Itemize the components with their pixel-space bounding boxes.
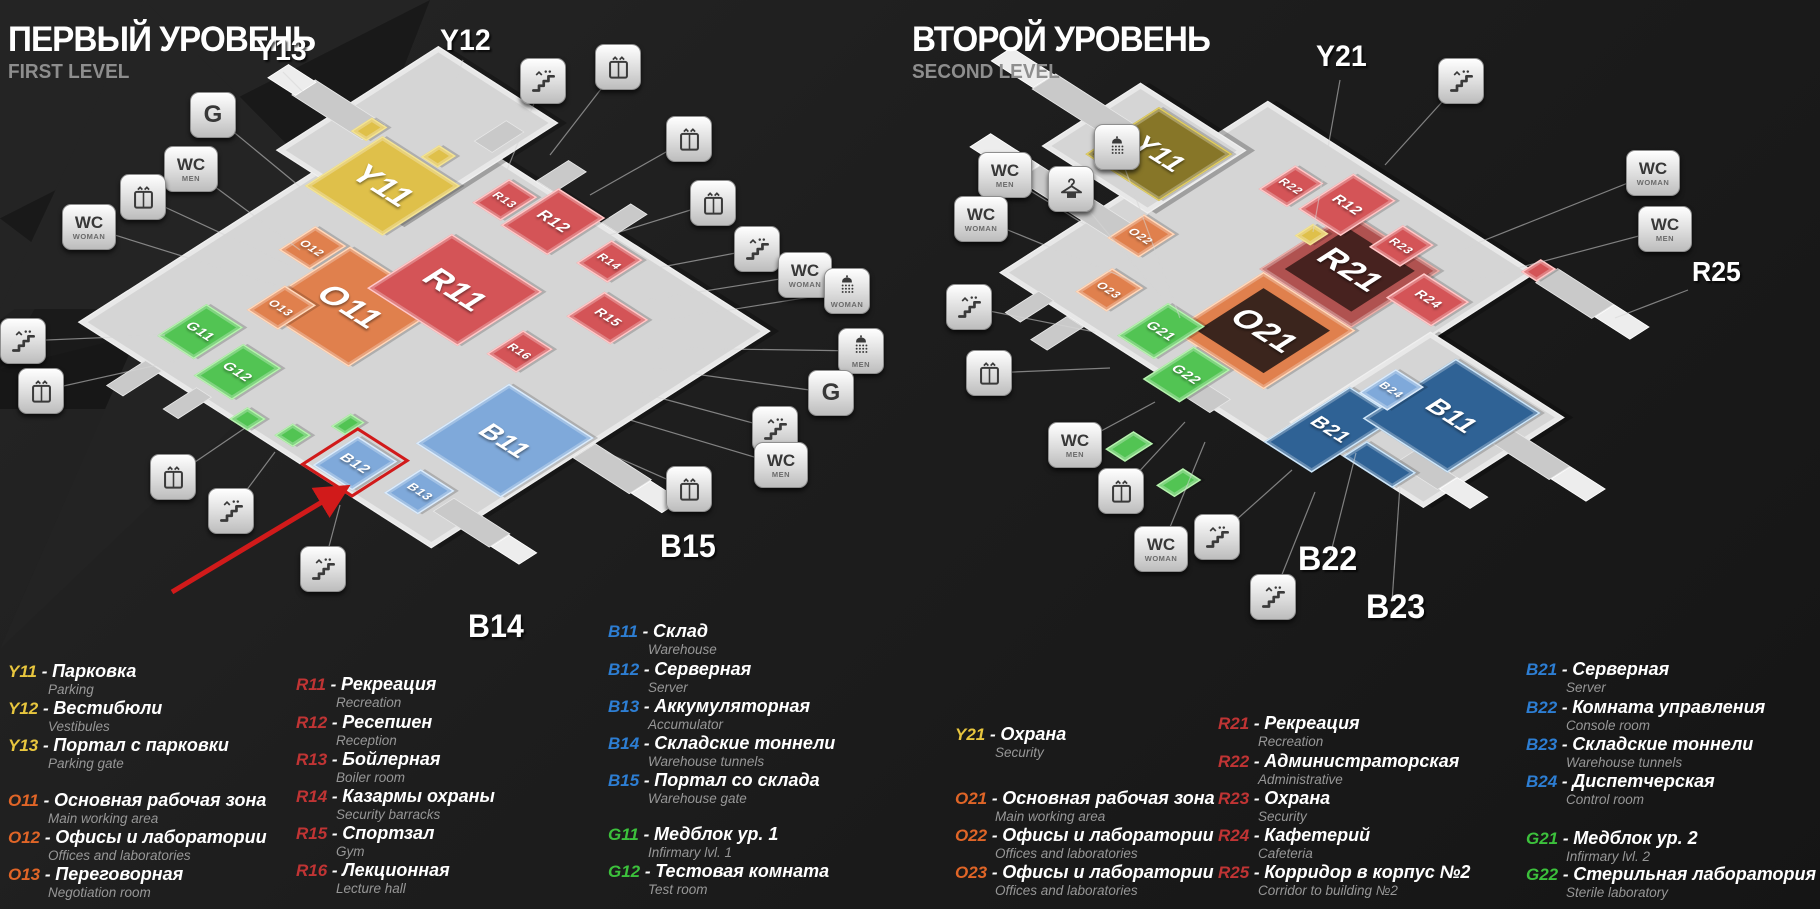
legend-entry-r13: R13 - БойлернаяBoiler room — [296, 749, 440, 786]
legend-dash: - — [985, 725, 1000, 744]
elevator-icon — [130, 184, 157, 211]
stairs-badge — [0, 318, 46, 364]
map-label-r25: R25 — [1692, 258, 1741, 286]
shower-icon — [848, 333, 874, 359]
elevator-badge — [18, 368, 64, 414]
legend-room-code: O21 — [955, 789, 987, 808]
wc-badge: WCMEN — [164, 146, 218, 192]
legend-entry-r14: R14 - Казармы охраныSecurity barracks — [296, 786, 495, 823]
elevator-badge — [150, 454, 196, 500]
map-label-y21: Y21 — [1316, 42, 1367, 72]
legend-room-code: R25 — [1218, 863, 1249, 882]
legend-name-en: Warehouse gate — [608, 791, 820, 807]
gate-badge-text: G — [204, 103, 223, 127]
map-pad — [1105, 431, 1153, 462]
wc-badge: WCWOMAN — [1134, 526, 1188, 572]
wc-badge-text: WC — [791, 262, 819, 279]
wc-badge-text: WC — [1651, 216, 1679, 233]
legend-room-code: B11 — [608, 622, 638, 641]
legend-room-code: G22 — [1526, 865, 1558, 884]
legend-dash: - — [40, 865, 55, 884]
room-label: R22 — [1275, 176, 1307, 196]
legend-entry-r23: R23 - ОхранаSecurity — [1218, 788, 1330, 825]
legend-dash: - — [1249, 752, 1264, 771]
legend-room-code: R23 — [1218, 789, 1249, 808]
facility-map-stage: ПЕРВЫЙ УРОВЕНЬ FIRST LEVEL ВТОРОЙ УРОВЕН… — [0, 0, 1820, 909]
wc-badge: WCMEN — [978, 152, 1032, 198]
legend-entry-o12: O12 - Офисы и лабораторииOffices and lab… — [8, 827, 267, 864]
legend-name-en: Offices and laboratories — [955, 846, 1214, 862]
room-label: B13 — [402, 481, 436, 503]
legend-name-en: Test room — [608, 882, 829, 898]
legend-entry-r15: R15 - СпортзалGym — [296, 823, 434, 860]
room-label: G22 — [1167, 362, 1206, 387]
legend-name-ru: Бойлерная — [342, 749, 440, 769]
legend-name-en: Security barracks — [296, 807, 495, 823]
wc-badge: WCWOMAN — [1626, 150, 1680, 196]
legend-dash: - — [39, 791, 54, 810]
legend-room-code: B22 — [1526, 698, 1557, 717]
level2-subtitle: SECOND LEVEL — [912, 61, 1210, 84]
level2-title-block: ВТОРОЙ УРОВЕНЬ SECOND LEVEL — [912, 22, 1226, 84]
legend-name-en: Parking — [8, 682, 136, 698]
legend-name-en: Warehouse tunnels — [1526, 755, 1753, 771]
legend-name-en: Cafeteria — [1218, 846, 1370, 862]
room-label: G12 — [218, 359, 257, 384]
legend-room-code: Y21 — [955, 725, 985, 744]
legend-room-code: O23 — [955, 863, 987, 882]
elevator-badge — [966, 350, 1012, 396]
legend-room-code: O12 — [8, 828, 40, 847]
legend-dash: - — [639, 660, 654, 679]
map-label-b14: B14 — [468, 610, 524, 642]
legend-dash: - — [327, 861, 342, 880]
elevator-badge — [120, 174, 166, 220]
legend-dash: - — [1558, 865, 1573, 884]
legend-entry-o11: O11 - Основная рабочая зонаMain working … — [8, 790, 266, 827]
room-label: R12 — [531, 207, 575, 235]
legend-dash: - — [639, 734, 654, 753]
legend-name-ru: Складские тоннели — [654, 733, 835, 753]
stairs-icon — [10, 328, 37, 355]
legend-name-en: Security — [1218, 809, 1330, 825]
legend-dash: - — [1557, 698, 1572, 717]
legend-room-code: G21 — [1526, 829, 1558, 848]
badge-sub-label: WOMAN — [73, 233, 106, 241]
legend-entry-r11: R11 - РекреацияRecreation — [296, 674, 436, 711]
legend-room-code: Y13 — [8, 736, 38, 755]
legend-name-ru: Медблок ур. 2 — [1573, 828, 1697, 848]
legend-dash: - — [1249, 714, 1264, 733]
legend-name-ru: Вестибюли — [53, 698, 162, 718]
room-label: R15 — [590, 307, 626, 330]
room-label: R13 — [489, 190, 521, 210]
elevator-badge — [595, 44, 641, 90]
room-label: R14 — [594, 251, 626, 271]
legend-name-ru: Стерильная лаборатория — [1573, 864, 1816, 884]
room-label: O22 — [1125, 226, 1157, 247]
legend-name-en: Corridor to building №2 — [1218, 883, 1470, 899]
legend-room-code: B21 — [1526, 660, 1557, 679]
legend-dash: - — [327, 787, 342, 806]
badge-sub-label: MEN — [1066, 451, 1084, 459]
legend-dash: - — [639, 825, 654, 844]
legend-name-ru: Ресепшен — [342, 712, 432, 732]
legend-name-en: Warehouse — [608, 642, 717, 658]
stairs-badge — [208, 488, 254, 534]
legend-entry-y12: Y12 - ВестибюлиVestibules — [8, 698, 162, 735]
legend-name-en: Console room — [1526, 718, 1765, 734]
room-label: B24 — [1376, 380, 1408, 400]
legend-name-ru: Портал с парковки — [53, 735, 229, 755]
badge-sub-label: WOMAN — [965, 225, 998, 233]
legend-room-code: O22 — [955, 826, 987, 845]
legend-dash: - — [40, 828, 55, 847]
legend-dash: - — [37, 662, 52, 681]
wc-badge-text: WC — [1061, 432, 1089, 449]
legend-name-en: Parking gate — [8, 756, 229, 772]
elevator-icon — [605, 54, 632, 81]
legend-entry-o23: O23 - Офисы и лабораторииOffices and lab… — [955, 862, 1214, 899]
map-label-b15: B15 — [660, 530, 716, 562]
stairs-icon — [310, 556, 337, 583]
gate-badge-text: G — [822, 381, 841, 405]
legend-entry-g11: G11 - Медблок ур. 1Infirmary lvl. 1 — [608, 824, 778, 861]
corridor-arm — [1005, 291, 1054, 323]
legend-name-ru: Офисы и лаборатории — [1002, 825, 1213, 845]
legend-dash: - — [326, 675, 341, 694]
legend-entry-g12: G12 - Тестовая комнатаTest room — [608, 861, 829, 898]
room-label: R24 — [1410, 288, 1446, 311]
legend-room-code: B12 — [608, 660, 639, 679]
legend-room-code: B24 — [1526, 772, 1557, 791]
stairs-icon — [530, 68, 557, 95]
legend-room-code: Y12 — [8, 699, 38, 718]
stairs-icon — [1260, 584, 1287, 611]
shower-badge: MEN — [838, 328, 884, 374]
room-label: O23 — [1093, 280, 1125, 301]
elevator-icon — [976, 360, 1003, 387]
legend-name-en: Accumulator — [608, 717, 810, 733]
hanger-icon — [1058, 176, 1085, 203]
legend-entry-b13: B13 - АккумуляторнаяAccumulator — [608, 696, 810, 733]
legend-name-en: Security — [955, 745, 1066, 761]
legend-room-code: B23 — [1526, 735, 1557, 754]
stairs-badge — [1250, 574, 1296, 620]
legend-name-ru: Офисы и лаборатории — [55, 827, 266, 847]
legend-dash: - — [987, 826, 1002, 845]
wc-badge-text: WC — [1147, 536, 1175, 553]
legend-dash: - — [987, 789, 1002, 808]
legend-entry-r24: R24 - КафетерийCafeteria — [1218, 825, 1370, 862]
legend-entry-r12: R12 - РесепшенReception — [296, 712, 432, 749]
legend-dash: - — [327, 824, 342, 843]
wc-badge-text: WC — [767, 452, 795, 469]
stairs-icon — [762, 416, 789, 443]
legend-name-en: Infirmary lvl. 2 — [1526, 849, 1698, 865]
legend-room-code: B15 — [608, 771, 639, 790]
legend-room-code: G12 — [608, 862, 640, 881]
legend-dash: - — [1249, 789, 1264, 808]
legend-name-ru: Тестовая комната — [655, 861, 829, 881]
wc-badge: WCMEN — [1048, 422, 1102, 468]
elevator-badge — [666, 116, 712, 162]
legend-entry-y21: Y21 - ОхранаSecurity — [955, 724, 1066, 761]
elevator-icon — [700, 190, 727, 217]
legend-dash: - — [639, 771, 654, 790]
room-label: O13 — [265, 297, 297, 318]
legend-name-en: Lecture hall — [296, 881, 450, 897]
legend-room-code: O13 — [8, 865, 40, 884]
legend-entry-y11: Y11 - ПарковкаParking — [8, 661, 136, 698]
corridor-arm — [1030, 316, 1084, 350]
legend-room-code: R21 — [1218, 714, 1249, 733]
legend-dash: - — [1557, 735, 1572, 754]
stairs-icon — [1204, 524, 1231, 551]
legend-name-ru: Склад — [653, 621, 708, 641]
shower-icon — [1104, 134, 1130, 160]
legend-entry-b14: B14 - Складские тоннелиWarehouse tunnels — [608, 733, 835, 770]
shower-badge — [1094, 124, 1140, 170]
wc-badge: WCMEN — [754, 442, 808, 488]
badge-sub-label: MEN — [772, 471, 790, 479]
elevator-badge — [666, 466, 712, 512]
legend-dash: - — [327, 713, 342, 732]
stairs-badge — [734, 226, 780, 272]
legend-name-ru: Серверная — [654, 659, 751, 679]
stairs-icon — [956, 294, 983, 321]
legend-entry-b15: B15 - Портал со складаWarehouse gate — [608, 770, 820, 807]
stairs-icon — [744, 236, 771, 263]
legend-name-en: Recreation — [296, 695, 436, 711]
legend-room-code: R22 — [1218, 752, 1249, 771]
legend-name-ru: Основная рабочая зона — [1002, 788, 1214, 808]
elevator-icon — [160, 464, 187, 491]
badge-sub-label: WOMAN — [1637, 179, 1670, 187]
legend-dash: - — [638, 622, 653, 641]
legend-name-ru: Переговорная — [55, 864, 183, 884]
legend-name-en: Infirmary lvl. 1 — [608, 845, 778, 861]
stairs-icon — [1448, 68, 1475, 95]
room-label: B11 — [471, 419, 540, 463]
legend-entry-b11: B11 - СкладWarehouse — [608, 621, 717, 658]
wc-badge-text: WC — [177, 156, 205, 173]
shower-icon — [834, 273, 860, 299]
g-badge: G — [808, 370, 854, 416]
legend-name-en: Server — [1526, 680, 1669, 696]
legend-entry-y13: Y13 - Портал с парковкиParking gate — [8, 735, 229, 772]
room-label: R12 — [1327, 192, 1367, 218]
legend-name-en: Server — [608, 680, 751, 696]
map-label-b23: B23 — [1366, 590, 1425, 624]
legend-name-en: Recreation — [1218, 734, 1360, 750]
legend-name-ru: Охрана — [1000, 724, 1066, 744]
legend-room-code: R16 — [296, 861, 327, 880]
badge-sub-label: WOMAN — [1145, 555, 1178, 563]
legend-name-en: Administrative — [1218, 772, 1459, 788]
legend-name-ru: Лекционная — [342, 860, 449, 880]
wc-badge: WCWOMAN — [954, 196, 1008, 242]
room-label: O12 — [296, 238, 328, 259]
wc-badge-text: WC — [991, 162, 1019, 179]
legend-room-code: R12 — [296, 713, 327, 732]
stairs-badge — [1194, 514, 1240, 560]
legend-name-ru: Медблок ур. 1 — [654, 824, 778, 844]
legend-name-en: Gym — [296, 844, 434, 860]
legend-entry-r22: R22 - АдминистраторскаяAdministrative — [1218, 751, 1459, 788]
room-label: R16 — [504, 341, 536, 361]
legend-name-en: Main working area — [955, 809, 1215, 825]
map-pad — [1156, 468, 1201, 497]
room-label: Y11 — [341, 159, 424, 212]
legend-dash: - — [1558, 829, 1573, 848]
legend-entry-b24: B24 - ДиспетчерскаяControl room — [1526, 771, 1715, 808]
map-label-b22: B22 — [1298, 542, 1357, 576]
elevator-icon — [1108, 478, 1135, 505]
legend-dash: - — [1557, 772, 1572, 791]
wc-badge: WCMEN — [1638, 206, 1692, 252]
hanger-badge — [1048, 166, 1094, 212]
legend-entry-r25: R25 - Корридор в корпус №2Corridor to bu… — [1218, 862, 1470, 899]
legend-dash: - — [1557, 660, 1572, 679]
legend-dash: - — [1249, 826, 1264, 845]
wc-badge-text: WC — [75, 214, 103, 231]
stairs-badge — [520, 58, 566, 104]
stairs-badge — [946, 284, 992, 330]
legend-name-ru: Офисы и лаборатории — [1002, 862, 1213, 882]
legend-entry-o13: O13 - ПереговорнаяNegotiation room — [8, 864, 183, 901]
legend-name-ru: Охрана — [1264, 788, 1330, 808]
legend-name-ru: Администраторская — [1264, 751, 1459, 771]
legend-name-ru: Складские тоннели — [1572, 734, 1753, 754]
legend-name-en: Control room — [1526, 792, 1715, 808]
elevator-badge — [1098, 468, 1144, 514]
stairs-badge — [300, 546, 346, 592]
legend-room-code: R24 — [1218, 826, 1249, 845]
legend-name-en: Negotiation room — [8, 885, 183, 901]
legend-name-ru: Диспетчерская — [1572, 771, 1714, 791]
legend-name-en: Main working area — [8, 811, 266, 827]
badge-sub-label: MEN — [852, 361, 870, 369]
legend-name-ru: Комната управления — [1572, 697, 1765, 717]
legend-name-ru: Кафетерий — [1264, 825, 1370, 845]
legend-dash: - — [38, 699, 53, 718]
legend-name-ru: Портал со склада — [654, 770, 819, 790]
badge-sub-label: WOMAN — [789, 281, 822, 289]
legend-room-code: R11 — [296, 675, 326, 694]
legend-name-en: Warehouse tunnels — [608, 754, 835, 770]
legend-entry-o21: O21 - Основная рабочая зонаMain working … — [955, 788, 1215, 825]
legend-room-code: O11 — [8, 791, 39, 810]
leader-line — [1392, 485, 1400, 602]
legend-entry-o22: O22 - Офисы и лабораторииOffices and lab… — [955, 825, 1214, 862]
legend-room-code: R14 — [296, 787, 327, 806]
legend-name-en: Vestibules — [8, 719, 162, 735]
stairs-badge — [1438, 58, 1484, 104]
legend-name-ru: Казармы охраны — [342, 786, 495, 806]
badge-sub-label: MEN — [1656, 235, 1674, 243]
legend-name-ru: Рекреация — [341, 674, 436, 694]
legend-name-ru: Спортзал — [342, 823, 434, 843]
legend-name-ru: Корридор в корпус №2 — [1264, 862, 1470, 882]
legend-dash: - — [327, 750, 342, 769]
map-label-y12: Y12 — [440, 26, 491, 56]
legend-entry-g22: G22 - Стерильная лабораторияSterile labo… — [1526, 864, 1816, 901]
legend-entry-b21: B21 - СервернаяServer — [1526, 659, 1669, 696]
level2-title: ВТОРОЙ УРОВЕНЬ — [912, 22, 1210, 59]
legend-name-en: Reception — [296, 733, 432, 749]
legend-name-ru: Рекреация — [1264, 713, 1359, 733]
legend-name-ru: Основная рабочая зона — [54, 790, 266, 810]
legend-name-en: Sterile laboratory — [1526, 885, 1816, 901]
wc-badge: WCWOMAN — [62, 204, 116, 250]
room-label: B21 — [1304, 413, 1357, 447]
badge-sub-label: WOMAN — [831, 301, 864, 309]
elevator-icon — [676, 476, 703, 503]
legend-entry-g21: G21 - Медблок ур. 2Infirmary lvl. 2 — [1526, 828, 1698, 865]
room-label: R23 — [1386, 236, 1418, 256]
legend-dash: - — [640, 862, 655, 881]
legend-entry-r16: R16 - ЛекционнаяLecture hall — [296, 860, 450, 897]
legend-dash: - — [987, 863, 1002, 882]
legend-room-code: G11 — [608, 825, 639, 844]
legend-name-ru: Серверная — [1572, 659, 1669, 679]
legend-entry-b12: B12 - СервернаяServer — [608, 659, 751, 696]
legend-dash: - — [38, 736, 53, 755]
shower-badge: WOMAN — [824, 268, 870, 314]
elevator-icon — [28, 378, 55, 405]
elevator-badge — [690, 180, 736, 226]
room-label: G11 — [181, 319, 219, 344]
legend-room-code: B13 — [608, 697, 639, 716]
wc-badge-text: WC — [967, 206, 995, 223]
legend-name-en: Offices and laboratories — [8, 848, 267, 864]
legend-room-code: R13 — [296, 750, 327, 769]
legend-room-code: B14 — [608, 734, 639, 753]
wc-badge-text: WC — [1639, 160, 1667, 177]
legend-dash: - — [639, 697, 654, 716]
legend-room-code: R15 — [296, 824, 327, 843]
map-label-y13: Y13 — [256, 36, 307, 66]
legend-entry-b22: B22 - Комната управленияConsole room — [1526, 697, 1765, 734]
room-label: B11 — [1417, 394, 1486, 438]
legend-entry-b23: B23 - Складские тоннелиWarehouse tunnels — [1526, 734, 1753, 771]
legend-name-en: Offices and laboratories — [955, 883, 1214, 899]
badge-sub-label: MEN — [996, 181, 1014, 189]
legend-name-en: Boiler room — [296, 770, 440, 786]
stairs-icon — [218, 498, 245, 525]
legend-entry-r21: R21 - РекреацияRecreation — [1218, 713, 1360, 750]
g-badge: G — [190, 92, 236, 138]
badge-sub-label: MEN — [182, 175, 200, 183]
legend-name-ru: Парковка — [52, 661, 136, 681]
legend-dash: - — [1249, 863, 1264, 882]
room-label: R11 — [412, 263, 496, 317]
elevator-icon — [676, 126, 703, 153]
legend-room-code: Y11 — [8, 662, 37, 681]
room-label: G21 — [1142, 319, 1181, 344]
legend-name-ru: Аккумуляторная — [654, 696, 810, 716]
